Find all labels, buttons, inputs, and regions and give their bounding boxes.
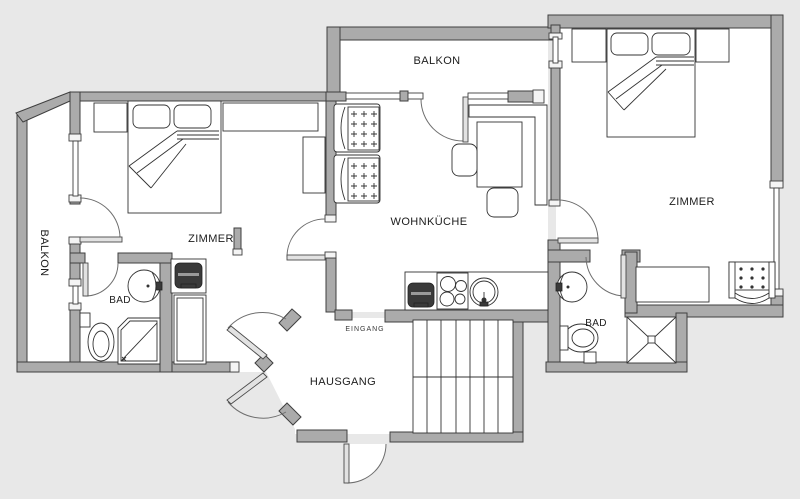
nightstand-icon (94, 103, 127, 132)
washing-machine-icon (171, 259, 206, 293)
staircase-icon (413, 320, 513, 433)
sofa-icon (334, 155, 380, 203)
shower-icon (118, 318, 160, 364)
room-label-zimmer-right: ZIMMER (669, 196, 715, 208)
window-left-zimmer (73, 141, 78, 196)
kitchen-counter-icon (405, 272, 548, 310)
nightstand-icon (696, 29, 729, 62)
floor-plan-page: BALKON BALKON ZIMMER ZIMMER WOHNKÜCHE BA… (0, 0, 800, 499)
cistern-icon (560, 326, 568, 350)
window-left-bad (73, 286, 78, 304)
bin-icon (584, 352, 596, 363)
shower-icon (627, 317, 676, 363)
floor-plan-image: BALKON BALKON ZIMMER ZIMMER WOHNKÜCHE BA… (0, 0, 800, 499)
window-zimmer-right-west (553, 37, 558, 63)
table-icon (477, 122, 522, 187)
room-label-wohnkueche: WOHNKÜCHE (391, 216, 468, 228)
chair-icon (487, 188, 518, 217)
window-balkon-2 (408, 93, 423, 99)
room-label-bad-left: BAD (109, 295, 130, 306)
room-label-eingang: EINGANG (345, 326, 384, 333)
pillow-icon (652, 33, 690, 55)
cabinet-icon (174, 295, 206, 364)
room-label-balkon-left: BALKON (38, 229, 50, 276)
pillow-icon (133, 105, 170, 128)
room-label-zimmer-left: ZIMMER (188, 233, 234, 245)
pillow-icon (174, 105, 211, 128)
window-balkon-3 (468, 93, 508, 99)
sink-icon (470, 278, 498, 306)
room-label-hausgang: HAUSGANG (310, 376, 376, 388)
sofa-icon (334, 104, 380, 152)
room-label-balkon-top: BALKON (413, 55, 460, 67)
chair-icon (452, 144, 477, 176)
pillow-icon (611, 33, 648, 55)
shelf-icon (303, 137, 325, 193)
nightstand-icon (572, 29, 606, 62)
desk-icon (636, 267, 709, 302)
kitchen-sink-unit-icon (408, 283, 434, 307)
dresser-icon (223, 103, 318, 131)
stove-icon (437, 273, 468, 309)
window-balkon-1 (346, 93, 400, 99)
cistern-icon (80, 313, 90, 327)
room-label-bad-right: BAD (585, 318, 606, 329)
